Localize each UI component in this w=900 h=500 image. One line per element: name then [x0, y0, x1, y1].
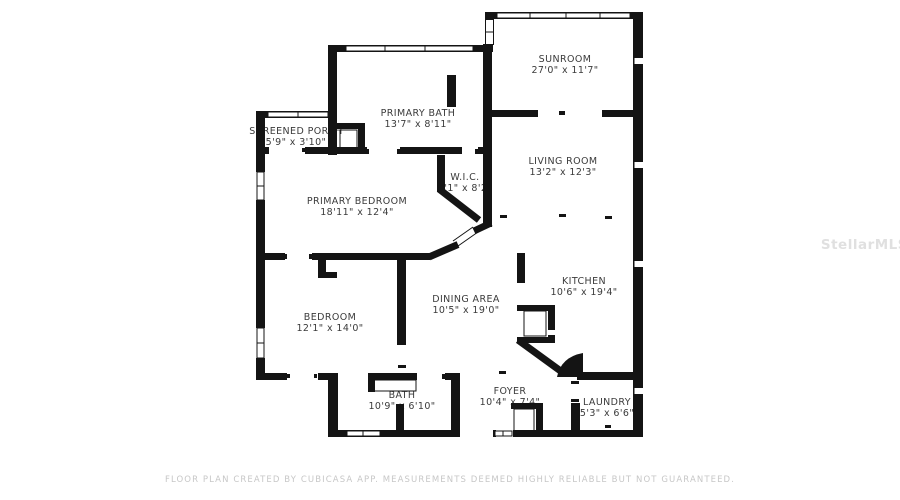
room-name: BATH: [368, 390, 435, 401]
room-name: SCREENED PORCH: [249, 126, 342, 137]
room-name: W.I.C.: [438, 172, 492, 183]
room-label-foyer: FOYER10'4" x 7'4": [480, 386, 541, 408]
room-dims: 5'9" x 3'10": [249, 137, 342, 148]
room-name: SUNROOM: [531, 54, 598, 65]
room-name: PRIMARY BATH: [381, 108, 456, 119]
room-dims: 5'3" x 6'6": [580, 408, 634, 419]
watermark: StellarMLS: [821, 237, 900, 253]
room-dims: 4'1" x 8'2": [438, 183, 492, 194]
room-name: BEDROOM: [296, 312, 363, 323]
room-name: LAUNDRY: [580, 397, 634, 408]
room-label-laundry: LAUNDRY5'3" x 6'6": [580, 397, 634, 419]
room-label-living-room: LIVING ROOM13'2" x 12'3": [528, 156, 597, 178]
room-dims: 18'11" x 12'4": [307, 207, 407, 218]
room-name: PRIMARY BEDROOM: [307, 196, 407, 207]
room-label-primary-bedroom: PRIMARY BEDROOM18'11" x 12'4": [307, 196, 407, 218]
floor-plan-canvas: SUNROOM27'0" x 11'7" SCREENED PORCH5'9" …: [0, 0, 900, 500]
room-label-primary-bath: PRIMARY BATH13'7" x 8'11": [381, 108, 456, 130]
room-dims: 12'1" x 14'0": [296, 323, 363, 334]
room-dims: 13'7" x 8'11": [381, 119, 456, 130]
room-label-wic: W.I.C.4'1" x 8'2": [438, 172, 492, 194]
room-label-dining-area: DINING AREA10'5" x 19'0": [432, 294, 500, 316]
room-label-bedroom: BEDROOM12'1" x 14'0": [296, 312, 363, 334]
room-label-bath: BATH10'9" x 6'10": [368, 390, 435, 412]
room-dims: 10'5" x 19'0": [432, 305, 500, 316]
room-name: LIVING ROOM: [528, 156, 597, 167]
room-labels: SUNROOM27'0" x 11'7" SCREENED PORCH5'9" …: [0, 0, 900, 500]
room-label-kitchen: KITCHEN10'6" x 19'4": [550, 276, 617, 298]
room-dims: 27'0" x 11'7": [531, 65, 598, 76]
room-label-screened-porch: SCREENED PORCH5'9" x 3'10": [249, 126, 342, 148]
room-name: DINING AREA: [432, 294, 500, 305]
room-dims: 10'6" x 19'4": [550, 287, 617, 298]
room-dims: 10'9" x 6'10": [368, 401, 435, 412]
room-label-sunroom: SUNROOM27'0" x 11'7": [531, 54, 598, 76]
room-name: KITCHEN: [550, 276, 617, 287]
room-name: FOYER: [480, 386, 541, 397]
footer-disclaimer: FLOOR PLAN CREATED BY CUBICASA APP. MEAS…: [0, 475, 900, 485]
room-dims: 10'4" x 7'4": [480, 397, 541, 408]
room-dims: 13'2" x 12'3": [528, 167, 597, 178]
